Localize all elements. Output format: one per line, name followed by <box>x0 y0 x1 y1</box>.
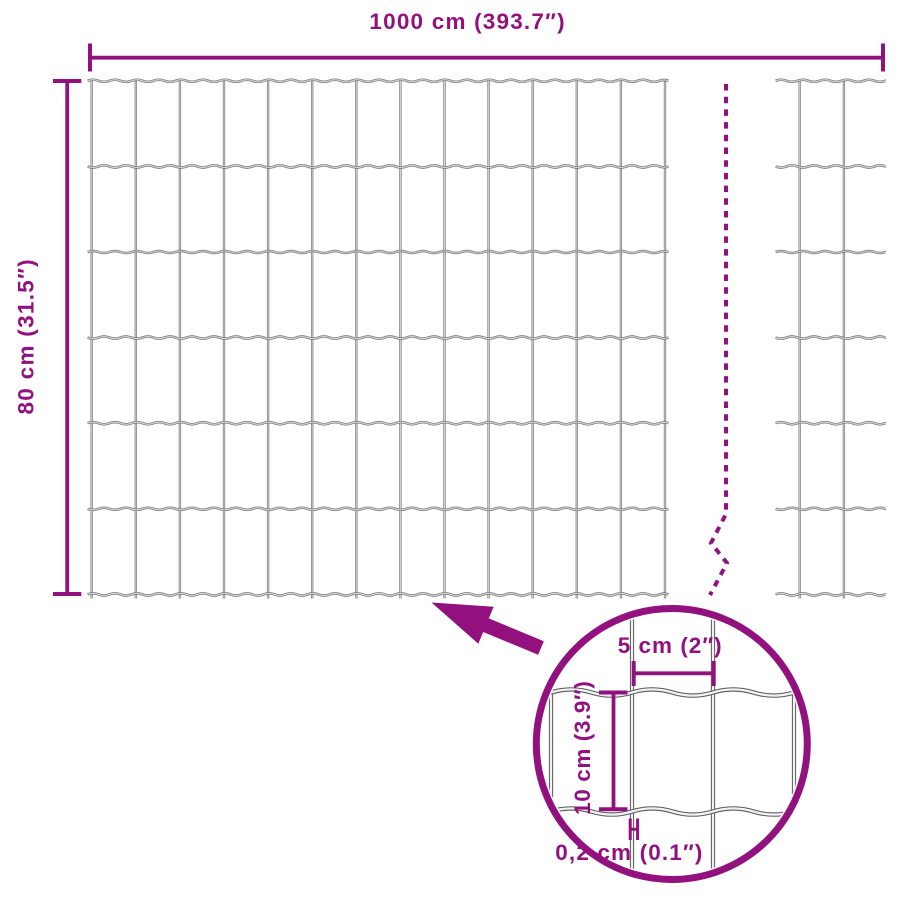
svg-text:0,2 cm (0.1″): 0,2 cm (0.1″) <box>555 840 703 865</box>
svg-text:10 cm (3.9″): 10 cm (3.9″) <box>570 681 595 815</box>
svg-text:1000 cm (393.7″): 1000 cm (393.7″) <box>369 9 565 34</box>
svg-text:80 cm (31.5″): 80 cm (31.5″) <box>13 258 38 415</box>
svg-text:5 cm (2″): 5 cm (2″) <box>618 633 723 658</box>
